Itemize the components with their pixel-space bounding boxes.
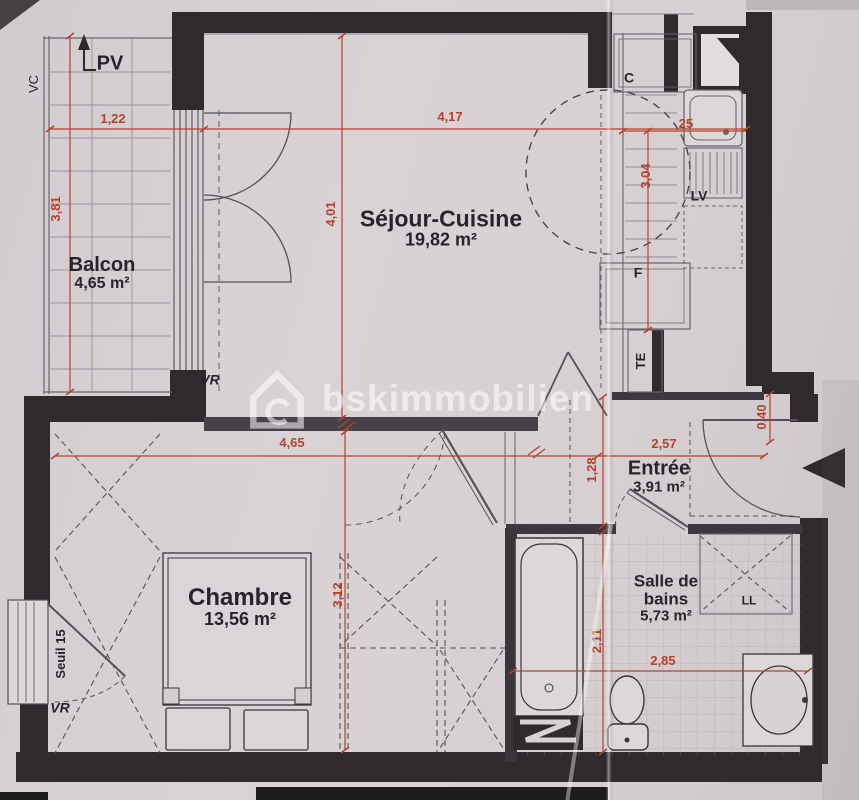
- kitchen-window: [697, 30, 743, 90]
- sdb-area: 5,73 m²: [619, 608, 714, 624]
- dim-sejour-width: 4,17: [437, 110, 462, 124]
- dim-chambre-width: 4,65: [279, 436, 304, 450]
- room-label-balcon: Balcon 4,65 m²: [69, 255, 136, 293]
- label-vr-chambre: VR: [50, 701, 69, 716]
- chambre-door: [345, 425, 497, 525]
- chambre-area: 13,56 m²: [188, 610, 292, 629]
- dim-sejour-depth: 4,01: [324, 201, 338, 226]
- sdb-name: Salle de bains: [619, 572, 714, 608]
- label-c: C: [624, 71, 634, 86]
- room-label-entree: Entrée 3,91 m²: [628, 459, 690, 496]
- dim-entree-width: 2,57: [651, 437, 676, 451]
- dim-cuisine-width: 25: [679, 117, 693, 131]
- sejour-area: 19,82 m²: [360, 231, 522, 250]
- entree-name: Entrée: [628, 459, 690, 480]
- dim-chambre-depth: 3,12: [331, 582, 345, 607]
- label-seuil: Seuil 15: [54, 629, 68, 678]
- scan-bottom-shadow: [256, 787, 608, 800]
- label-vc: VC: [27, 75, 41, 93]
- floor-plan-linework: [0, 0, 859, 800]
- room-label-sejour: Séjour-Cuisine 19,82 m²: [360, 206, 522, 249]
- scan-right-shade: [822, 380, 859, 800]
- dim-entree-offset: 0,40: [755, 404, 769, 429]
- chambre-name: Chambre: [188, 585, 292, 610]
- entree-area: 3,91 m²: [628, 480, 690, 496]
- room-label-chambre: Chambre 13,56 m²: [188, 585, 292, 629]
- pv-arrow-icon: [78, 34, 96, 70]
- label-vr-balcon: VR: [200, 373, 219, 388]
- sejour-name: Séjour-Cuisine: [360, 206, 522, 230]
- label-f: F: [634, 266, 643, 281]
- label-ll: LL: [742, 595, 757, 608]
- paper-crease: [606, 0, 614, 800]
- dim-sdb-width: 2,85: [650, 654, 675, 668]
- floor-plan: bskimmobilien Balcon 4,65 m² Séjour-Cuis…: [0, 0, 859, 800]
- scan-edge-strip: [746, 0, 859, 10]
- dim-balcon-depth: 3,81: [49, 196, 63, 221]
- bathroom: [513, 534, 813, 756]
- bed: [163, 553, 311, 750]
- dim-cuisine-depth: 3,04: [639, 163, 653, 188]
- scan-bottom-left-shadow: [0, 792, 48, 800]
- balcony: [44, 36, 291, 394]
- label-te: TE: [634, 353, 648, 370]
- room-label-sdb: Salle de bains 5,73 m²: [619, 572, 714, 623]
- balcon-area: 4,65 m²: [69, 276, 136, 293]
- label-pv: PV: [97, 54, 124, 75]
- dim-entree-depth: 1,28: [585, 457, 599, 482]
- dim-balcon-width: 1,22: [100, 112, 125, 126]
- label-lv: LV: [691, 189, 708, 204]
- balcon-name: Balcon: [69, 255, 136, 276]
